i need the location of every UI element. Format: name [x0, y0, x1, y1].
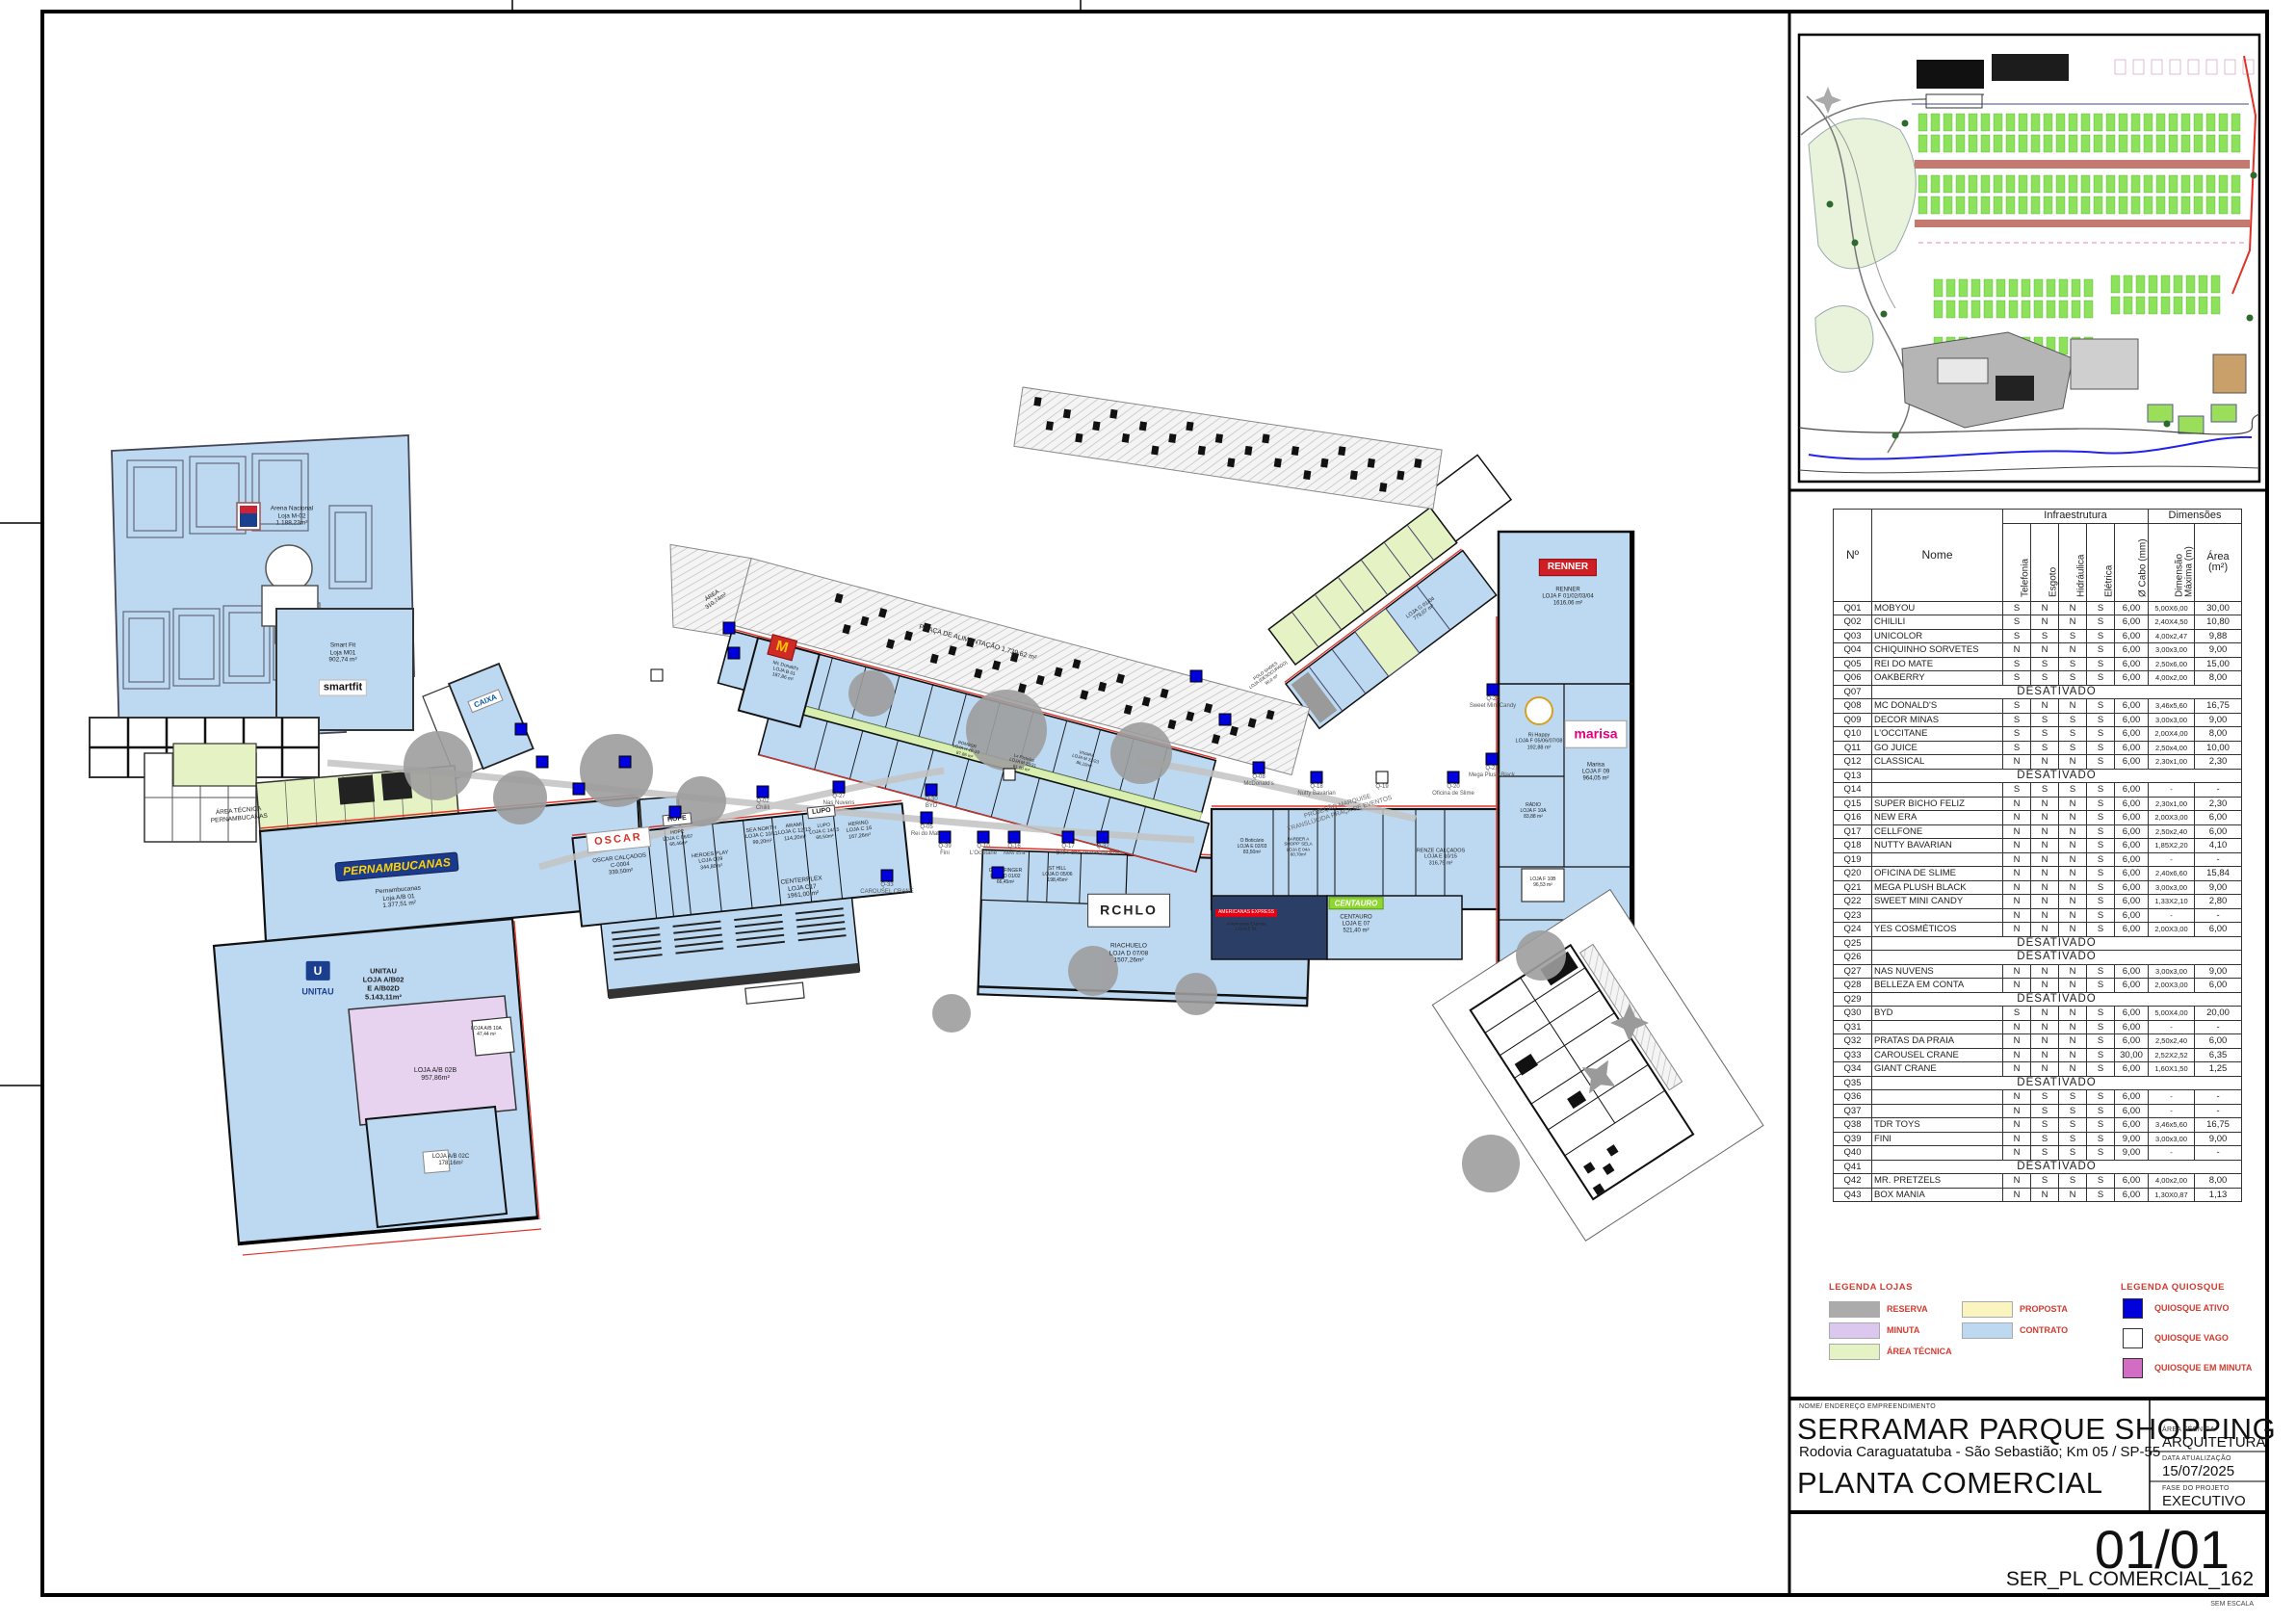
cell-hidraulica: N — [2059, 908, 2087, 923]
kiosk-marker-ativo — [573, 783, 586, 796]
cell-dimensao: 3,00x3,00 — [2149, 964, 2195, 979]
kiosk-desativado: DESATIVADO — [1872, 769, 2242, 783]
cell-cabo: 6,00 — [2115, 643, 2149, 658]
kiosk-number: Q37 — [1834, 1104, 1872, 1118]
cell-eletrica: S — [2087, 1188, 2115, 1202]
cell-hidraulica: N — [2059, 839, 2087, 853]
cell-dimensao: - — [2149, 1020, 2195, 1034]
kiosk-number: Q43 — [1834, 1188, 1872, 1202]
cell-hidraulica: N — [2059, 824, 2087, 839]
drawing-code: SER_PL COMERCIAL_162 — [1926, 1568, 2254, 1591]
kiosk-number: Q14 — [1834, 783, 1872, 798]
kiosk-number: Q07 — [1834, 685, 1872, 699]
cell-esgoto: S — [2031, 727, 2059, 742]
cell-esgoto: N — [2031, 1048, 2059, 1062]
cell-cabo: 6,00 — [2115, 979, 2149, 993]
kiosk-number: Q39 — [1834, 1132, 1872, 1146]
cell-area: 16,75 — [2195, 699, 2242, 714]
cell-esgoto: N — [2031, 811, 2059, 825]
cell-hidraulica: N — [2059, 811, 2087, 825]
kiosk-marker-vago — [651, 669, 664, 682]
cell-area: 6,00 — [2195, 979, 2242, 993]
kiosk-marker-ativo — [1062, 831, 1075, 844]
cell-esgoto: N — [2031, 979, 2059, 993]
area-tecnica-value: ARQUITETURA — [2162, 1434, 2266, 1451]
cell-esgoto: N — [2031, 643, 2059, 658]
cell-area: - — [2195, 1020, 2242, 1034]
cell-eletrica: S — [2087, 783, 2115, 798]
cell-cabo: 30,00 — [2115, 1048, 2149, 1062]
table-row: Q43BOX MANIANNNS6,001,30X0,871,13 — [1834, 1188, 2242, 1202]
kiosk-name — [1872, 852, 2003, 867]
cell-telefonia: N — [2003, 839, 2031, 853]
legend-swatch — [2123, 1298, 2143, 1319]
kiosk-desativado: DESATIVADO — [1872, 1160, 2242, 1174]
cell-cabo: 6,00 — [2115, 797, 2149, 811]
cell-esgoto: N — [2031, 964, 2059, 979]
kiosk-marker-ativo — [1219, 714, 1232, 726]
kiosk-marker-label: Q-39 Fini — [938, 844, 951, 856]
kiosk-name: FINI — [1872, 1132, 2003, 1146]
cell-dimensao: 5,00X4,00 — [2149, 1007, 2195, 1021]
cell-area: - — [2195, 1104, 2242, 1118]
cell-telefonia: N — [2003, 1188, 2031, 1202]
cell-dimensao: 1,30X0,87 — [2149, 1188, 2195, 1202]
cell-telefonia: N — [2003, 1034, 2031, 1049]
legend-label: RESERVA — [1887, 1304, 1928, 1314]
table-row: Q36NSSS6,00-- — [1834, 1090, 2242, 1105]
cell-area: - — [2195, 852, 2242, 867]
cell-esgoto: S — [2031, 1104, 2059, 1118]
legend-quiosque-title: LEGENDA QUIOSQUE — [2121, 1282, 2225, 1293]
cell-eletrica: S — [2087, 1048, 2115, 1062]
cell-dimensao: 2,50x2,40 — [2149, 1034, 2195, 1049]
legend-label: QUIOSQUE EM MINUTA — [2154, 1363, 2252, 1373]
cell-cabo: 6,00 — [2115, 1104, 2149, 1118]
cell-telefonia: S — [2003, 615, 2031, 630]
kiosk-marker-label: Q-22 Sweet Mini Candy — [1470, 696, 1516, 709]
cell-telefonia: N — [2003, 797, 2031, 811]
kiosk-number: Q19 — [1834, 852, 1872, 867]
kiosk-name: SUPER BICHO FELIZ — [1872, 797, 2003, 811]
cell-dimensao: 2,00X3,00 — [2149, 811, 2195, 825]
kiosk-marker-label: Q-33 CAROUSEL CRANE — [860, 882, 913, 895]
table-row: Q19NNNS6,00-- — [1834, 852, 2242, 867]
kiosk-name — [1872, 1146, 2003, 1161]
cell-hidraulica: N — [2059, 964, 2087, 979]
cell-area: 6,00 — [2195, 811, 2242, 825]
cell-cabo: 6,00 — [2115, 741, 2149, 755]
kiosk-name: TDR TOYS — [1872, 1118, 2003, 1133]
col-header-nome: Nome — [1872, 510, 2003, 602]
col-header-hidraulica: Hidráulica — [2059, 523, 2087, 601]
kiosk-number: Q38 — [1834, 1118, 1872, 1133]
cell-esgoto: N — [2031, 895, 2059, 909]
kiosk-marker-ativo — [757, 786, 770, 798]
kiosk-desativado: DESATIVADO — [1872, 951, 2242, 965]
kiosk-number: Q09 — [1834, 713, 1872, 727]
kiosk-name: CELLFONE — [1872, 824, 2003, 839]
cell-telefonia: N — [2003, 880, 2031, 895]
cell-dimensao: 1,33X2,10 — [2149, 895, 2195, 909]
kiosk-number: Q31 — [1834, 1020, 1872, 1034]
cell-eletrica: S — [2087, 1132, 2115, 1146]
cell-telefonia: S — [2003, 713, 2031, 727]
kiosk-name: DECOR MINAS — [1872, 713, 2003, 727]
cell-telefonia: S — [2003, 1007, 2031, 1021]
table-row: Q35DESATIVADO — [1834, 1076, 2242, 1090]
cell-eletrica: S — [2087, 713, 2115, 727]
cell-eletrica: S — [2087, 727, 2115, 742]
table-row: Q31NNNS6,00-- — [1834, 1020, 2242, 1034]
cell-dimensao: 2,50x2,40 — [2149, 824, 2195, 839]
table-row: Q34GIANT CRANENNNS6,001,60X1,501,25 — [1834, 1062, 2242, 1077]
legend-label: CONTRATO — [2020, 1325, 2068, 1335]
cell-cabo: 6,00 — [2115, 657, 2149, 671]
kiosk-number: Q10 — [1834, 727, 1872, 742]
cell-esgoto: N — [2031, 601, 2059, 615]
table-row: Q18NUTTY BAVARIANNNNS6,001,85X2,204,10 — [1834, 839, 2242, 853]
cell-eletrica: S — [2087, 1034, 2115, 1049]
kiosk-name: BELLEZA EM CONTA — [1872, 979, 2003, 993]
cell-cabo: 6,00 — [2115, 1007, 2149, 1021]
cell-hidraulica: N — [2059, 979, 2087, 993]
cell-esgoto: N — [2031, 755, 2059, 770]
cell-esgoto: N — [2031, 908, 2059, 923]
table-row: Q25DESATIVADO — [1834, 936, 2242, 951]
legend-swatch — [1829, 1322, 1880, 1339]
kiosk-marker-ativo — [1097, 831, 1109, 844]
data-atualizacao-label: DATA ATUALIZAÇÃO — [2162, 1455, 2231, 1462]
cell-dimensao: 2,30x1,00 — [2149, 797, 2195, 811]
cell-hidraulica: N — [2059, 880, 2087, 895]
cell-hidraulica: N — [2059, 797, 2087, 811]
cell-esgoto: S — [2031, 1090, 2059, 1105]
kiosk-number: Q13 — [1834, 769, 1872, 783]
table-row: Q23NNNS6,00-- — [1834, 908, 2242, 923]
kiosk-marker-vago — [1004, 769, 1016, 781]
cell-cabo: 6,00 — [2115, 727, 2149, 742]
kiosk-number: Q42 — [1834, 1174, 1872, 1189]
cell-dimensao: 2,50x6,00 — [2149, 657, 2195, 671]
fase-projeto-label: FASE DO PROJETO — [2162, 1485, 2230, 1492]
cell-cabo: 6,00 — [2115, 1062, 2149, 1077]
kiosk-name: L'OCCITANE — [1872, 727, 2003, 742]
cell-telefonia: N — [2003, 964, 2031, 979]
kiosk-number: Q11 — [1834, 741, 1872, 755]
kiosk-marker-ativo — [1008, 831, 1021, 844]
kiosk-marker-label: Q-32 Pratas da Praia — [1083, 844, 1122, 856]
kiosk-number: Q26 — [1834, 951, 1872, 965]
kiosk-number: Q12 — [1834, 755, 1872, 770]
kiosk-name: UNICOLOR — [1872, 629, 2003, 643]
table-row: Q33CAROUSEL CRANENNNS30,002,52X2,526,35 — [1834, 1048, 2242, 1062]
cell-telefonia: N — [2003, 824, 2031, 839]
cell-hidraulica: N — [2059, 1020, 2087, 1034]
cell-telefonia: N — [2003, 867, 2031, 881]
cell-hidraulica: N — [2059, 601, 2087, 615]
cell-dimensao: - — [2149, 1104, 2195, 1118]
kiosk-number: Q08 — [1834, 699, 1872, 714]
kiosk-name: CAROUSEL CRANE — [1872, 1048, 2003, 1062]
kiosk-marker-label: Q-18 Nutty Bavarian — [1297, 784, 1335, 797]
kiosk-number: Q21 — [1834, 880, 1872, 895]
kiosk-marker-ativo — [926, 784, 938, 797]
cell-esgoto: N — [2031, 839, 2059, 853]
kiosk-number: Q32 — [1834, 1034, 1872, 1049]
kiosk-marker-ativo — [1253, 762, 1265, 774]
cell-area: 6,00 — [2195, 923, 2242, 937]
cell-eletrica: S — [2087, 615, 2115, 630]
cell-esgoto: N — [2031, 797, 2059, 811]
col-header-numero: Nº — [1834, 510, 1872, 602]
cell-dimensao: 3,00x3,00 — [2149, 643, 2195, 658]
kiosk-name — [1872, 783, 2003, 798]
cell-dimensao: 2,52X2,52 — [2149, 1048, 2195, 1062]
cell-esgoto: N — [2031, 867, 2059, 881]
legend-swatch — [1962, 1322, 2013, 1339]
cell-telefonia: N — [2003, 1146, 2031, 1161]
cell-dimensao: 2,40X4,50 — [2149, 615, 2195, 630]
cell-dimensao: 3,00x3,00 — [2149, 880, 2195, 895]
cell-dimensao: 2,40x6,60 — [2149, 867, 2195, 881]
cell-esgoto: N — [2031, 1188, 2059, 1202]
cell-cabo: 6,00 — [2115, 852, 2149, 867]
cell-cabo: 6,00 — [2115, 895, 2149, 909]
cell-telefonia: N — [2003, 1104, 2031, 1118]
kiosk-number: Q28 — [1834, 979, 1872, 993]
cell-area: 6,00 — [2195, 824, 2242, 839]
cell-cabo: 6,00 — [2115, 1118, 2149, 1133]
table-row: Q16NEW ERANNNS6,002,00X3,006,00 — [1834, 811, 2242, 825]
cell-area: 2,30 — [2195, 797, 2242, 811]
cell-area: 6,35 — [2195, 1048, 2242, 1062]
kiosk-number: Q30 — [1834, 1007, 1872, 1021]
kiosk-marker-label: Q-17 Cell Fone — [1056, 844, 1081, 856]
cell-hidraulica: N — [2059, 615, 2087, 630]
cell-dimensao: 2,50x4,00 — [2149, 741, 2195, 755]
cell-area: 9,00 — [2195, 713, 2242, 727]
cell-hidraulica: N — [2059, 852, 2087, 867]
legend-swatch — [2123, 1328, 2143, 1348]
cell-telefonia: S — [2003, 657, 2031, 671]
cell-esgoto: N — [2031, 1020, 2059, 1034]
cell-hidraulica: S — [2059, 1132, 2087, 1146]
project-address: Rodovia Caraguatatuba - São Sebastião; K… — [1799, 1444, 2160, 1460]
cell-dimensao: 2,00X3,00 — [2149, 923, 2195, 937]
kiosk-marker-label: Q-19 — [1375, 784, 1388, 791]
cell-eletrica: S — [2087, 699, 2115, 714]
table-row: Q27NAS NUVENSNNNS6,003,00x3,009,00 — [1834, 964, 2242, 979]
kiosk-name: BOX MANIA — [1872, 1188, 2003, 1202]
kiosk-number: Q06 — [1834, 671, 1872, 686]
cell-hidraulica: N — [2059, 699, 2087, 714]
cell-telefonia: N — [2003, 908, 2031, 923]
cell-esgoto: S — [2031, 713, 2059, 727]
kiosk-number: Q29 — [1834, 992, 1872, 1007]
kiosk-number: Q34 — [1834, 1062, 1872, 1077]
cell-hidraulica: N — [2059, 1188, 2087, 1202]
data-atualizacao-value: 15/07/2025 — [2162, 1463, 2234, 1479]
cell-cabo: 6,00 — [2115, 713, 2149, 727]
cell-hidraulica: S — [2059, 657, 2087, 671]
cell-telefonia: N — [2003, 895, 2031, 909]
cell-esgoto: S — [2031, 741, 2059, 755]
cell-eletrica: S — [2087, 1020, 2115, 1034]
cell-eletrica: S — [2087, 979, 2115, 993]
cell-eletrica: S — [2087, 629, 2115, 643]
cell-dimensao: - — [2149, 908, 2195, 923]
kiosk-name: MOBYOU — [1872, 601, 2003, 615]
kiosk-name: MC DONALD'S — [1872, 699, 2003, 714]
kiosk-marker-ativo — [1448, 772, 1460, 784]
cell-esgoto: N — [2031, 1034, 2059, 1049]
cell-area: 15,00 — [2195, 657, 2242, 671]
cell-area: 9,88 — [2195, 629, 2242, 643]
table-row: Q05REI DO MATESSSS6,002,50x6,0015,00 — [1834, 657, 2242, 671]
cell-hidraulica: N — [2059, 923, 2087, 937]
cell-cabo: 6,00 — [2115, 811, 2149, 825]
cell-esgoto: S — [2031, 629, 2059, 643]
cell-cabo: 6,00 — [2115, 699, 2149, 714]
cell-cabo: 6,00 — [2115, 783, 2149, 798]
legend-label: MINUTA — [1887, 1325, 1919, 1335]
cell-hidraulica: N — [2059, 895, 2087, 909]
kiosk-marker-ativo — [978, 831, 990, 844]
cell-eletrica: S — [2087, 657, 2115, 671]
table-row: Q40NSSS9,00-- — [1834, 1146, 2242, 1161]
cell-dimensao: 5,00X6,00 — [2149, 601, 2195, 615]
table-row: Q21MEGA PLUSH BLACKNNNS6,003,00x3,009,00 — [1834, 880, 2242, 895]
table-row: Q42MR. PRETZELSNSSS6,004,00x2,008,00 — [1834, 1174, 2242, 1189]
cell-telefonia: N — [2003, 811, 2031, 825]
cell-dimensao: 3,00x3,00 — [2149, 713, 2195, 727]
cell-eletrica: S — [2087, 811, 2115, 825]
kiosk-name: NAS NUVENS — [1872, 964, 2003, 979]
kiosk-number: Q35 — [1834, 1076, 1872, 1090]
legend-lojas-title: LEGENDA LOJAS — [1829, 1282, 1913, 1293]
col-header-eletrica: Elétrica — [2087, 523, 2115, 601]
table-row: Q07DESATIVADO — [1834, 685, 2242, 699]
table-row: Q24YES COSMÉTICOSNNNS6,002,00X3,006,00 — [1834, 923, 2242, 937]
cell-esgoto: N — [2031, 923, 2059, 937]
cell-cabo: 6,00 — [2115, 964, 2149, 979]
legend-label: PROPOSTA — [2020, 1304, 2068, 1314]
cell-hidraulica: S — [2059, 671, 2087, 686]
table-row: Q32PRATAS DA PRAIANNNS6,002,50x2,406,00 — [1834, 1034, 2242, 1049]
kiosk-number: Q23 — [1834, 908, 1872, 923]
cell-eletrica: S — [2087, 880, 2115, 895]
table-row: Q12CLASSICALNNNS6,002,30x1,002,30 — [1834, 755, 2242, 770]
kiosk-number: Q03 — [1834, 629, 1872, 643]
kiosk-marker-label: Q-27 Nas Nuvens — [823, 794, 855, 806]
cell-eletrica: S — [2087, 1007, 2115, 1021]
kiosk-name: PRATAS DA PRAIA — [1872, 1034, 2003, 1049]
table-row: Q06OAKBERRYSSSS6,004,00x2,008,00 — [1834, 671, 2242, 686]
cell-telefonia: N — [2003, 979, 2031, 993]
cell-hidraulica: N — [2059, 1007, 2087, 1021]
area-tecnica-label: ÁREA TÉCNICA — [2162, 1426, 2215, 1433]
kiosk-marker-label: Q-21 Mega Plush Black — [1469, 766, 1515, 778]
cell-telefonia: N — [2003, 755, 2031, 770]
kiosk-table: Nº Nome Infraestrutura Dimensões Telefon… — [1833, 509, 2242, 1202]
cell-dimensao: 3,00x3,00 — [2149, 1132, 2195, 1146]
kiosk-number: Q18 — [1834, 839, 1872, 853]
cell-dimensao: - — [2149, 852, 2195, 867]
table-row: Q11GO JUICESSSS6,002,50x4,0010,00 — [1834, 741, 2242, 755]
cell-telefonia: S — [2003, 699, 2031, 714]
kiosk-marker-label: Q-20 Oficina de Slime — [1432, 784, 1474, 797]
kiosk-marker-ativo — [1487, 684, 1500, 696]
cell-dimensao: 2,30x1,00 — [2149, 755, 2195, 770]
kiosk-marker-ativo — [1311, 772, 1323, 784]
table-row: Q20OFICINA DE SLIMENNNS6,002,40x6,6015,8… — [1834, 867, 2242, 881]
kiosk-marker-label: Q-10 L'Occitane — [970, 844, 997, 856]
table-row: Q30BYDSNNS6,005,00X4,0020,00 — [1834, 1007, 2242, 1021]
cell-cabo: 6,00 — [2115, 839, 2149, 853]
kiosk-name: YES COSMÉTICOS — [1872, 923, 2003, 937]
cell-dimensao: 4,00x2,00 — [2149, 1174, 2195, 1189]
kiosk-name: MEGA PLUSH BLACK — [1872, 880, 2003, 895]
cell-hidraulica: N — [2059, 1048, 2087, 1062]
col-header-cabo: Ø Cabo (mm) — [2115, 523, 2149, 601]
cell-eletrica: S — [2087, 1118, 2115, 1133]
cell-cabo: 6,00 — [2115, 629, 2149, 643]
kiosk-name: BYD — [1872, 1007, 2003, 1021]
kiosk-name — [1872, 1090, 2003, 1105]
cell-eletrica: S — [2087, 797, 2115, 811]
legend-label: QUIOSQUE ATIVO — [2154, 1303, 2230, 1313]
cell-area: 8,00 — [2195, 1174, 2242, 1189]
kiosk-marker-ativo — [728, 647, 741, 660]
kiosk-name: NEW ERA — [1872, 811, 2003, 825]
table-row: Q22SWEET MINI CANDYNNNS6,001,33X2,102,80 — [1834, 895, 2242, 909]
kiosk-marker-label: Q-08 McDonald's — [1243, 774, 1273, 787]
col-header-area: Área (m²) — [2195, 523, 2242, 601]
kiosk-marker-ativo — [1190, 670, 1203, 683]
cell-esgoto: N — [2031, 1062, 2059, 1077]
cell-telefonia: N — [2003, 643, 2031, 658]
cell-cabo: 6,00 — [2115, 1090, 2149, 1105]
cell-telefonia: S — [2003, 601, 2031, 615]
legend-label: QUIOSQUE VAGO — [2154, 1333, 2229, 1343]
cell-esgoto: S — [2031, 1174, 2059, 1189]
cell-esgoto: S — [2031, 1132, 2059, 1146]
kiosk-number: Q05 — [1834, 657, 1872, 671]
kiosk-name — [1872, 908, 2003, 923]
kiosk-name: CHIQUINHO SORVETES — [1872, 643, 2003, 658]
cell-dimensao: - — [2149, 1146, 2195, 1161]
cell-area: - — [2195, 1146, 2242, 1161]
cell-cabo: 9,00 — [2115, 1132, 2149, 1146]
cell-area: 4,10 — [2195, 839, 2242, 853]
cell-hidraulica: S — [2059, 1146, 2087, 1161]
cell-esgoto: N — [2031, 1007, 2059, 1021]
kiosk-marker-label: Q-02 Chilili — [756, 798, 770, 811]
table-row: Q01MOBYOUSNNS6,005,00X6,0030,00 — [1834, 601, 2242, 615]
cell-cabo: 6,00 — [2115, 867, 2149, 881]
cell-hidraulica: S — [2059, 1174, 2087, 1189]
kiosk-number: Q27 — [1834, 964, 1872, 979]
cell-esgoto: N — [2031, 615, 2059, 630]
kiosk-desativado: DESATIVADO — [1872, 936, 2242, 951]
drawing-sheet: Arena Nacional Loja M-02 1.188,23m²Smart… — [0, 0, 2296, 1622]
kiosk-name: NUTTY BAVARIAN — [1872, 839, 2003, 853]
cell-area: 15,84 — [2195, 867, 2242, 881]
table-row: Q10L'OCCITANESSSS6,002,00X4,008,00 — [1834, 727, 2242, 742]
cell-eletrica: S — [2087, 643, 2115, 658]
cell-telefonia: N — [2003, 1132, 2031, 1146]
